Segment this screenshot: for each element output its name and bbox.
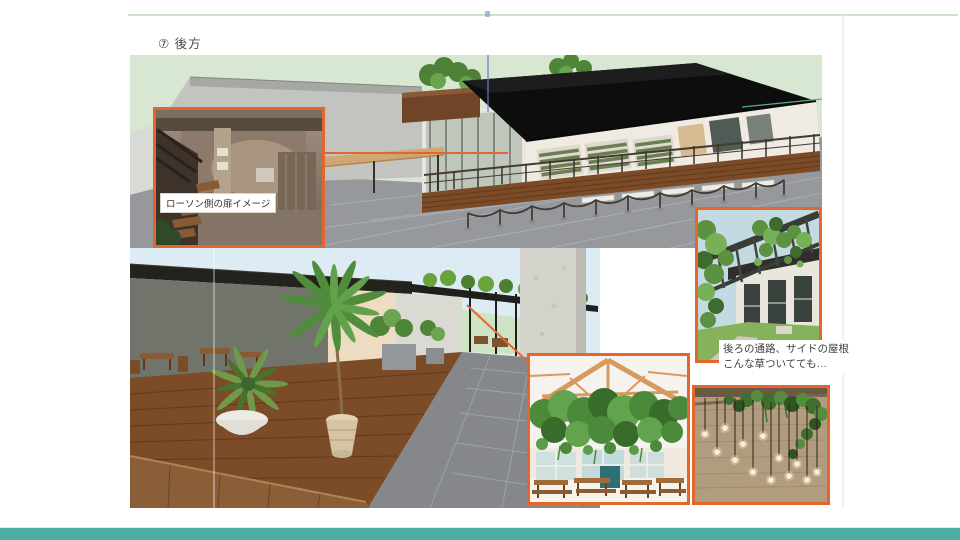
photo-lawson-door-reference (153, 107, 325, 248)
page-title: ⑦ 後方 (158, 33, 202, 52)
photo-hanging-bulbs (692, 385, 830, 505)
top-rule (128, 14, 958, 16)
photo-hanging-greenery-interior (527, 353, 690, 505)
pergola-note: 後ろの通路、サイドの屋根 こんな草ついてても… (719, 340, 853, 374)
panel-divider-line (842, 15, 844, 507)
pergola-note-line1: 後ろの通路、サイドの屋根 (723, 342, 849, 357)
slide-canvas: ⑦ 後方 (0, 0, 960, 540)
footer-accent-bar (0, 527, 960, 540)
concrete-pillar (520, 248, 586, 364)
tiny-axis-mark (485, 11, 490, 17)
lawson-door-caption: ローソン側の扉イメージ (160, 193, 276, 213)
pergola-note-line2: こんな草ついてても… (723, 357, 849, 372)
